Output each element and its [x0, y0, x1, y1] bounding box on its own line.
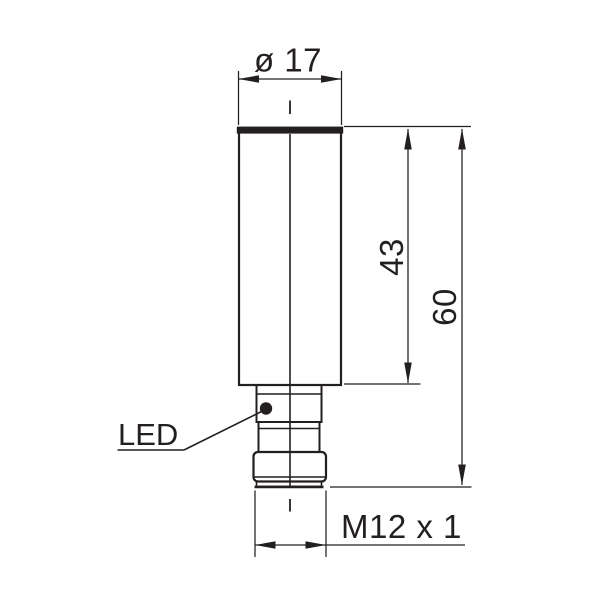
arrowhead-right [306, 541, 327, 548]
dimension-thread: M12 x 1 [255, 491, 465, 558]
arrowhead-right [321, 75, 342, 83]
led-callout: LED [118, 412, 262, 453]
dimension-overall-length: 60 [330, 129, 472, 487]
arrowhead-down [404, 363, 412, 384]
arrowhead-up [404, 129, 412, 150]
led-label: LED [118, 417, 178, 452]
sensing-face [237, 127, 343, 134]
overall-length-label: 60 [426, 288, 463, 326]
connector-mid-section [259, 422, 320, 452]
arrowhead-left [255, 541, 276, 548]
dimension-body-length: 43 [344, 127, 471, 385]
body-length-label: 43 [373, 238, 410, 276]
drawing-canvas: ø 17 43 60 M12 x 1 LED [0, 0, 600, 600]
led-indicator-dot [260, 402, 272, 414]
arrowhead-up [458, 129, 466, 150]
diameter-label: ø 17 [254, 42, 322, 79]
sensor-dimension-drawing: ø 17 43 60 M12 x 1 LED [0, 0, 600, 600]
thread-label: M12 x 1 [341, 508, 462, 545]
arrowhead-down [458, 465, 466, 486]
led-leader-line [184, 412, 262, 451]
